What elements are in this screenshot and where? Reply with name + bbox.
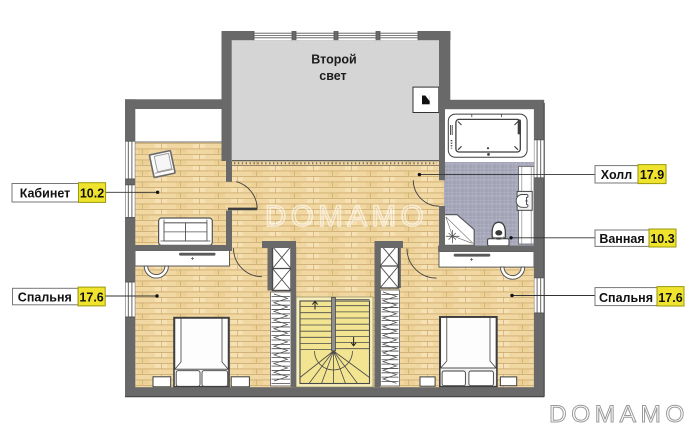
- svg-text:Кабинет: Кабинет: [20, 187, 71, 201]
- svg-text:17.6: 17.6: [79, 291, 103, 305]
- svg-text:свет: свет: [319, 69, 346, 83]
- svg-text:DOMAMO: DOMAMO: [265, 200, 428, 233]
- svg-text:17.6: 17.6: [658, 291, 682, 305]
- svg-text:10.2: 10.2: [80, 187, 104, 201]
- svg-text:Второй: Второй: [311, 53, 356, 67]
- svg-text:DOMAMO: DOMAMO: [549, 401, 689, 428]
- svg-text:Ванная: Ванная: [599, 232, 644, 246]
- svg-text:10.3: 10.3: [650, 232, 674, 246]
- svg-text:Холл: Холл: [601, 168, 632, 182]
- svg-text:Спальня: Спальня: [18, 291, 72, 305]
- svg-text:Спальня: Спальня: [599, 291, 653, 305]
- svg-text:17.9: 17.9: [640, 168, 664, 182]
